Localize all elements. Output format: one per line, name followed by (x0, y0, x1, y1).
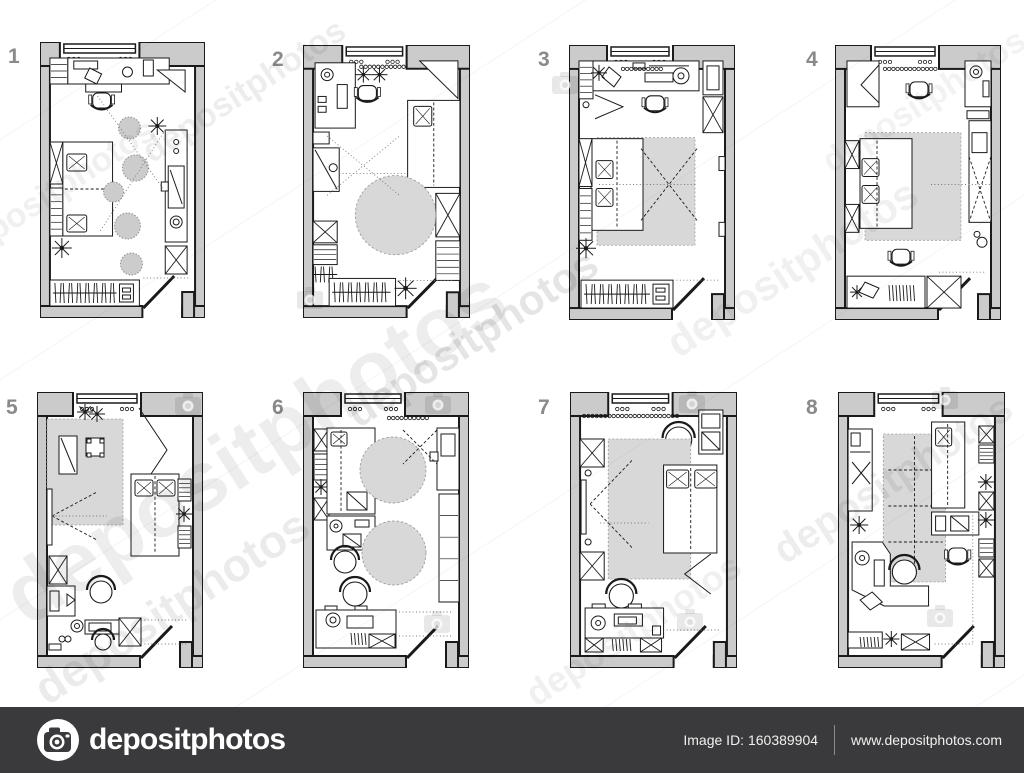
plan-number: 6 (272, 396, 284, 420)
floor-plan-3 (569, 45, 735, 320)
floor-plan-drawing (838, 392, 1005, 668)
floor-plan-6 (303, 392, 469, 668)
plan-number: 4 (806, 48, 818, 72)
floor-plan-5 (37, 392, 203, 668)
floor-plan-7 (570, 392, 737, 668)
website-text: www.depositphotos.com (851, 732, 1002, 748)
plan-number: 5 (6, 396, 18, 420)
floor-plan-1 (40, 42, 205, 318)
floor-plan-2 (303, 45, 470, 318)
camera-logo-icon (36, 718, 80, 762)
depositphotos-logo: depositphotos (36, 718, 285, 762)
floor-plan-4 (835, 45, 1001, 320)
footer-separator (834, 725, 835, 755)
plan-number: 3 (538, 48, 550, 72)
floor-plan-drawing (37, 392, 203, 668)
floor-plan-drawing (570, 392, 737, 668)
footer-meta: Image ID: 160389904 www.depositphotos.co… (683, 725, 1002, 755)
image-id-text: Image ID: 160389904 (683, 732, 818, 748)
floor-plan-drawing (569, 45, 735, 320)
footer-bar: depositphotos Image ID: 160389904 www.de… (0, 707, 1024, 773)
floor-plan-drawing (40, 42, 205, 318)
plan-number: 2 (272, 48, 284, 72)
floor-plan-drawing (303, 392, 469, 668)
floor-plan-drawing (303, 45, 470, 318)
plan-number: 1 (8, 45, 20, 69)
logo-wordmark: depositphotos (89, 723, 285, 757)
floor-plan-drawing (835, 45, 1001, 320)
plan-number: 7 (538, 396, 550, 420)
stock-image-canvas: 12345678 depositphotosdepositphotosdepos… (0, 0, 1024, 773)
plan-number: 8 (806, 396, 818, 420)
floor-plan-8 (838, 392, 1005, 668)
